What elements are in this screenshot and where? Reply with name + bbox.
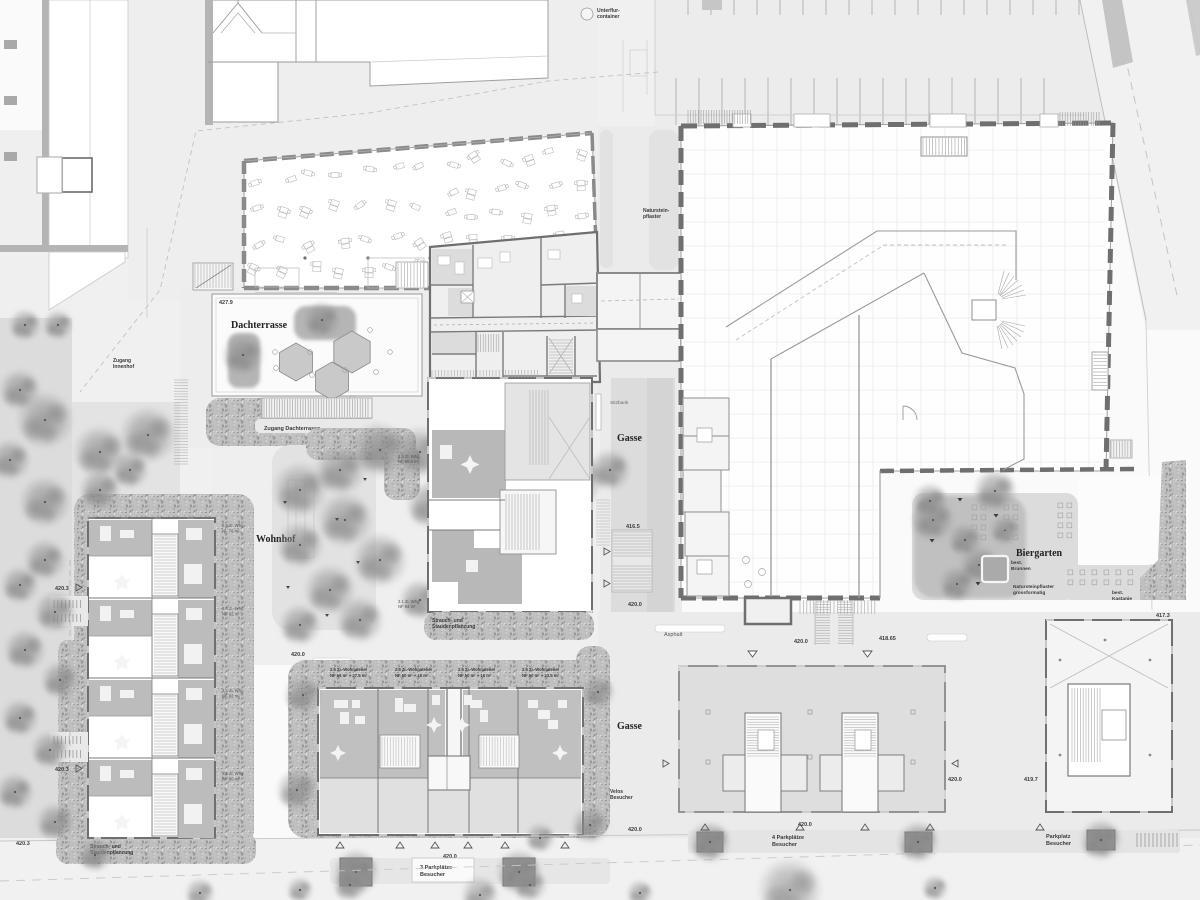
svg-text:NF 66 m² + 27.5 m²: NF 66 m² + 27.5 m² <box>330 673 367 678</box>
svg-text:container: container <box>597 14 620 20</box>
svg-text:Kastanie: Kastanie <box>1112 596 1132 602</box>
svg-text:NF 90 m²: NF 90 m² <box>222 777 240 782</box>
svg-text:420.0: 420.0 <box>948 777 962 783</box>
svg-text:Besucher: Besucher <box>1046 841 1072 847</box>
svg-text:420.0: 420.0 <box>794 639 808 645</box>
svg-text:Natursteinpflaster: Natursteinpflaster <box>1013 584 1054 590</box>
svg-text:NF 60 m² + 23.5 m²: NF 60 m² + 23.5 m² <box>522 673 559 678</box>
svg-text:Innenhof: Innenhof <box>113 364 134 370</box>
svg-text:NF 92 m²: NF 92 m² <box>222 694 240 699</box>
svg-text:420.3: 420.3 <box>16 841 30 847</box>
svg-text:2.5 Zi.-Wohnatelier: 2.5 Zi.-Wohnatelier <box>330 667 368 672</box>
svg-text:NF 92 m²: NF 92 m² <box>222 612 240 617</box>
svg-text:Besucher: Besucher <box>772 842 798 848</box>
svg-text:2.5 Zi.-Wohnatelier: 2.5 Zi.-Wohnatelier <box>458 667 496 672</box>
svg-text:Asphalt: Asphalt <box>664 632 683 638</box>
svg-text:Dachterrasse: Dachterrasse <box>231 320 288 331</box>
svg-text:3.5 Zi. Whg: 3.5 Zi. Whg <box>222 688 244 693</box>
svg-text:418.65: 418.65 <box>879 636 896 642</box>
svg-text:2.5 Zi.-Wohnatelier: 2.5 Zi.-Wohnatelier <box>395 667 433 672</box>
svg-text:4.5 Zi. Whg: 4.5 Zi. Whg <box>222 771 244 776</box>
svg-text:420.0: 420.0 <box>628 602 642 608</box>
svg-text:416.5: 416.5 <box>626 524 640 530</box>
svg-text:NF 85.5 m²: NF 85.5 m² <box>398 459 420 464</box>
svg-text:417.3: 417.3 <box>1156 613 1170 619</box>
svg-text:Sitzbank: Sitzbank <box>610 400 629 406</box>
svg-text:NF 50 m² + 16 m²: NF 50 m² + 16 m² <box>395 673 429 678</box>
svg-text:NF 50 m² + 16 m²: NF 50 m² + 16 m² <box>458 673 492 678</box>
svg-text:420.0: 420.0 <box>798 822 812 828</box>
svg-text:best.: best. <box>1011 560 1022 566</box>
svg-text:Besucher: Besucher <box>420 872 446 878</box>
svg-text:Gasse: Gasse <box>617 433 643 444</box>
svg-text:NF 94 m²: NF 94 m² <box>398 604 416 609</box>
svg-text:420.0: 420.0 <box>291 652 305 658</box>
svg-text:Staudenpflanzung: Staudenpflanzung <box>432 624 475 630</box>
svg-text:best.: best. <box>1112 590 1123 596</box>
svg-text:pflaster: pflaster <box>643 214 661 220</box>
svg-text:Besucher: Besucher <box>610 795 633 801</box>
svg-text:427.9: 427.9 <box>219 300 233 306</box>
svg-text:4 Parkplätze: 4 Parkplätze <box>772 835 804 841</box>
svg-text:Gasse: Gasse <box>617 721 643 732</box>
svg-text:419.7: 419.7 <box>1024 777 1038 783</box>
svg-text:2.5 Zi.-Wohnatelier: 2.5 Zi.-Wohnatelier <box>522 667 560 672</box>
svg-text:Parkplatz: Parkplatz <box>1046 834 1071 840</box>
svg-text:grossformatig: grossformatig <box>1013 590 1045 596</box>
svg-text:Brunnen: Brunnen <box>1011 566 1031 572</box>
svg-text:2.5 Zi. Whg: 2.5 Zi. Whg <box>222 523 244 528</box>
svg-text:420.0: 420.0 <box>628 827 642 833</box>
svg-text:3.5 Zi. Whg: 3.5 Zi. Whg <box>222 606 244 611</box>
svg-text:Biergarten: Biergarten <box>1016 548 1063 559</box>
svg-text:NF 76 m²: NF 76 m² <box>222 529 240 534</box>
